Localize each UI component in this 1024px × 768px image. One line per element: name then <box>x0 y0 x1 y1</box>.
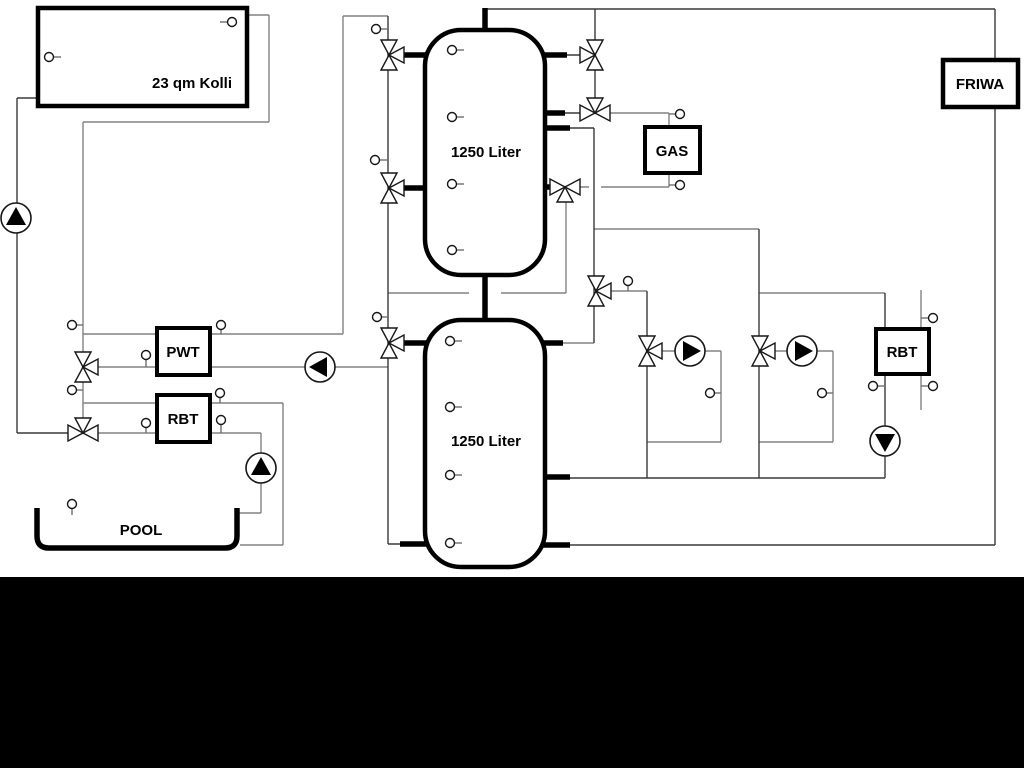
gas-return-valve <box>550 179 580 202</box>
tank-bottom-label: 1250 Liter <box>451 433 521 450</box>
schematic-svg: 23 qm Kolli 1250 Liter 1250 Liter PWT RB… <box>0 0 1024 768</box>
circuit1-temp-sensor <box>706 389 722 398</box>
temp-sensor <box>372 25 389 34</box>
heating-circuit2-pump <box>787 336 817 366</box>
collector-label: 23 qm Kolli <box>152 75 232 92</box>
pool-return-valve <box>68 418 98 441</box>
gas-return-temp-sensor <box>669 181 685 190</box>
gas-supply-valve <box>580 98 610 121</box>
temp-sensor <box>68 321 84 330</box>
temp-sensor <box>921 382 938 391</box>
pool-pump <box>246 453 276 483</box>
mixing-valve-circuit1 <box>639 336 662 366</box>
hydraulic-schematic: 23 qm Kolli 1250 Liter 1250 Liter PWT RB… <box>0 0 1024 768</box>
temp-sensor <box>371 156 389 165</box>
heating-circuit1-pump <box>675 336 705 366</box>
mixing-valve-circuit2 <box>752 336 775 366</box>
circuit2-temp-sensor <box>818 389 834 398</box>
temp-sensor <box>921 314 938 323</box>
tank1-top-right-valve <box>580 40 603 70</box>
temp-sensor <box>373 313 389 322</box>
temp-sensor <box>68 386 84 395</box>
heating-supply-valve <box>588 276 611 306</box>
rbt-right-label: RBT <box>887 344 918 361</box>
charge-valve-tank1-mid-left <box>381 173 404 203</box>
rbt-right-pump <box>870 426 900 456</box>
charge-valve-tank2-left <box>381 328 404 358</box>
gas-label: GAS <box>656 143 689 160</box>
temp-sensor <box>624 277 633 292</box>
temp-sensor <box>869 382 886 391</box>
pool-label: POOL <box>120 522 163 539</box>
friwa-label: FRIWA <box>956 76 1004 93</box>
temp-sensor <box>142 351 151 368</box>
tank-top-label: 1250 Liter <box>451 144 521 161</box>
solar-pump <box>1 203 31 233</box>
pwt-label: PWT <box>166 344 199 361</box>
temp-sensor <box>142 419 151 434</box>
temp-sensor <box>216 389 225 404</box>
footer-bar <box>0 577 1024 768</box>
pwt-charge-pump <box>305 352 335 382</box>
rbt-left-label: RBT <box>168 411 199 428</box>
charge-valve-tank1-top-left <box>381 40 404 70</box>
temp-sensor <box>217 321 226 335</box>
temp-sensor <box>217 416 226 434</box>
gas-supply-temp-sensor <box>669 110 685 119</box>
pool-temp-sensor <box>68 500 77 516</box>
solar-supply-valve <box>75 352 98 382</box>
